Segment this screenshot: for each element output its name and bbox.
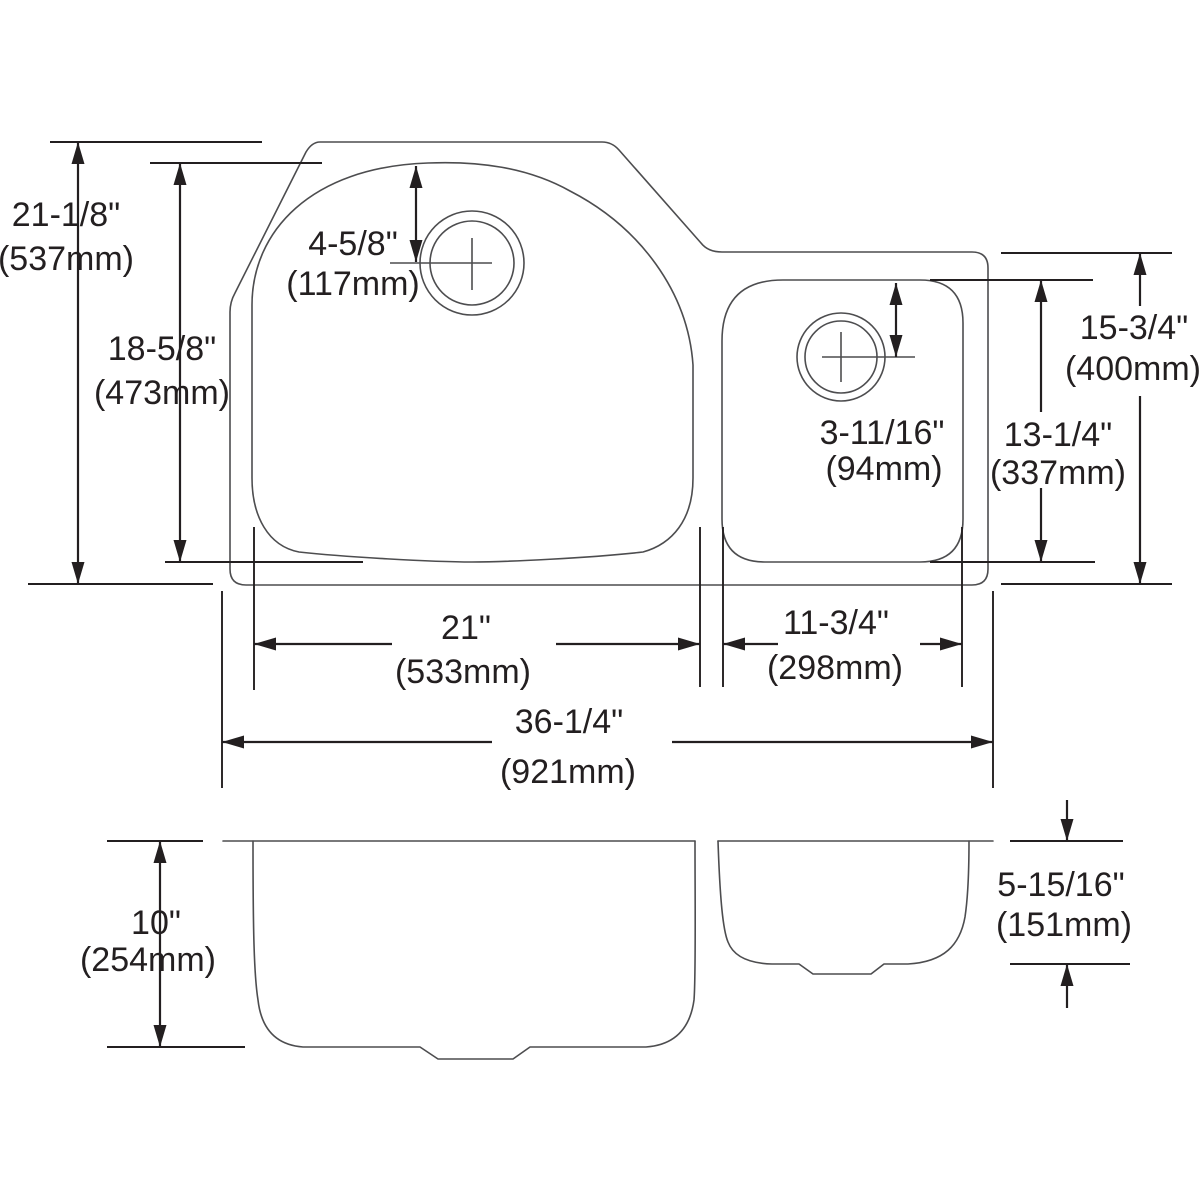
label-left-drain-offset-in: 4-5/8"	[308, 225, 398, 263]
label-left-bowl-front-to-back-in: 18-5/8"	[108, 330, 216, 368]
label-overall-width-in: 36-1/4"	[515, 703, 623, 741]
front-right-bowl-profile	[718, 841, 969, 974]
sink-rim-outline	[230, 142, 988, 585]
label-left-bowl-width-in: 21"	[441, 609, 491, 647]
label-right-drain-offset-mm: (94mm)	[825, 450, 942, 488]
sink-dimension-drawing: 21-1/8" (537mm) 18-5/8" (473mm) 4-5/8" (…	[0, 0, 1200, 1200]
label-overall-front-to-back-mm: (537mm)	[0, 240, 134, 278]
front-view: 10" (254mm) 5-15/16" (151mm)	[80, 800, 1132, 1059]
label-left-bowl-width-mm: (533mm)	[395, 653, 531, 691]
front-left-bowl-profile	[253, 841, 695, 1059]
label-right-section-front-to-back-mm: (400mm)	[1065, 350, 1200, 388]
label-right-bowl-front-to-back-in: 13-1/4"	[1004, 416, 1112, 454]
label-left-bowl-depth-in: 10"	[131, 904, 181, 942]
label-right-section-front-to-back-in: 15-3/4"	[1080, 309, 1188, 347]
label-overall-front-to-back-in: 21-1/8"	[12, 196, 120, 234]
label-overall-width-mm: (921mm)	[500, 753, 636, 791]
label-right-drain-offset-in: 3-11/16"	[820, 414, 945, 452]
label-right-bowl-depth-in: 5-15/16"	[997, 866, 1124, 904]
left-bowl-outline	[252, 163, 693, 562]
label-right-bowl-width-in: 11-3/4"	[783, 604, 889, 642]
label-right-bowl-depth-mm: (151mm)	[996, 906, 1132, 944]
technical-drawing-page: 21-1/8" (537mm) 18-5/8" (473mm) 4-5/8" (…	[0, 0, 1200, 1200]
label-right-bowl-width-mm: (298mm)	[767, 649, 903, 687]
label-right-bowl-front-to-back-mm: (337mm)	[990, 454, 1126, 492]
label-left-drain-offset-mm: (117mm)	[286, 265, 420, 303]
label-left-bowl-depth-mm: (254mm)	[80, 941, 216, 979]
label-left-bowl-front-to-back-mm: (473mm)	[94, 374, 230, 412]
top-view: 21-1/8" (537mm) 18-5/8" (473mm) 4-5/8" (…	[0, 142, 1200, 791]
